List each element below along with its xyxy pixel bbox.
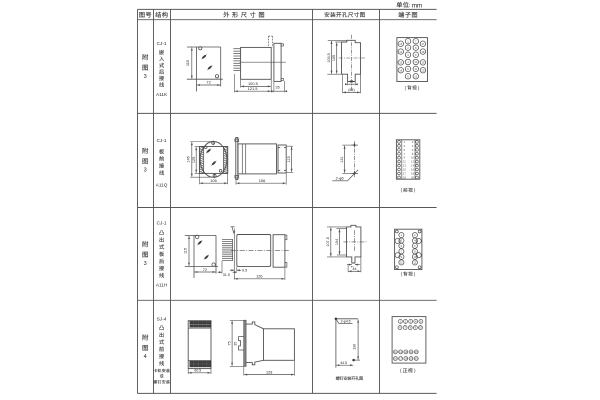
svg-text:19: 19 (410, 357, 413, 361)
svg-text:156: 156 (259, 178, 266, 183)
svg-text:131: 131 (340, 156, 344, 162)
svg-text:18: 18 (404, 357, 407, 361)
svg-text:11: 11 (414, 67, 417, 71)
svg-text:A11Q: A11Q (156, 182, 168, 187)
svg-text:31.5: 31.5 (223, 273, 230, 277)
svg-text:15: 15 (415, 350, 418, 354)
svg-text:17: 17 (399, 357, 402, 361)
svg-text:A11H: A11H (156, 282, 167, 287)
svg-text:14: 14 (410, 350, 413, 354)
svg-text:11: 11 (394, 350, 397, 354)
svg-text:20: 20 (421, 68, 424, 72)
svg-text:17: 17 (421, 42, 424, 46)
svg-text:35: 35 (276, 86, 280, 90)
svg-text:2-φ6: 2-φ6 (336, 177, 344, 181)
svg-text:104: 104 (335, 239, 339, 245)
svg-text:13: 13 (404, 350, 407, 354)
svg-text:115: 115 (287, 156, 291, 162)
svg-text:75: 75 (228, 341, 232, 345)
svg-text:125: 125 (192, 157, 196, 163)
svg-text:44: 44 (353, 267, 357, 271)
svg-text:20: 20 (415, 357, 418, 361)
svg-text:2-φ4.5: 2-φ4.5 (341, 319, 351, 323)
svg-text:9.5: 9.5 (242, 268, 247, 272)
svg-text:115: 115 (185, 60, 190, 66)
svg-text:16: 16 (399, 68, 402, 72)
svg-text:18: 18 (421, 50, 424, 54)
svg-text:mm: mm (412, 2, 422, 9)
svg-text:115: 115 (183, 248, 187, 254)
svg-text:121.5: 121.5 (248, 86, 258, 91)
svg-text:105: 105 (210, 178, 217, 183)
svg-text:72: 72 (203, 268, 207, 272)
svg-text:4: 4 (144, 354, 147, 360)
svg-text:A11K: A11K (156, 92, 168, 97)
svg-text:CJ-1: CJ-1 (157, 221, 167, 226)
svg-text:60.5: 60.5 (194, 369, 201, 373)
svg-text:SJ-4: SJ-4 (157, 317, 167, 322)
svg-text:72: 72 (206, 80, 210, 85)
svg-text:3: 3 (144, 167, 147, 173)
svg-text:3: 3 (144, 74, 147, 80)
svg-text:15: 15 (399, 61, 402, 65)
svg-text:19: 19 (421, 61, 424, 65)
svg-text:3: 3 (144, 261, 147, 267)
svg-text:13: 13 (399, 42, 402, 46)
svg-text:107.5: 107.5 (326, 237, 330, 247)
svg-text:10: 10 (419, 326, 422, 330)
svg-text:130: 130 (353, 344, 357, 350)
svg-text:128: 128 (266, 371, 272, 375)
svg-text:44.5: 44.5 (340, 361, 347, 365)
svg-text:CJ-1: CJ-1 (157, 41, 167, 46)
svg-text:12: 12 (414, 75, 417, 79)
svg-text:12: 12 (399, 350, 402, 354)
svg-text:105: 105 (332, 55, 336, 61)
svg-text:16: 16 (394, 357, 397, 361)
svg-text:CJ-1: CJ-1 (157, 138, 167, 143)
svg-text:16: 16 (349, 79, 353, 83)
svg-text:14: 14 (399, 50, 402, 54)
svg-text:35: 35 (234, 342, 238, 346)
svg-text:126: 126 (256, 275, 262, 279)
svg-text:103.5: 103.5 (327, 53, 331, 63)
svg-text:(84): (84) (348, 88, 354, 92)
svg-text:145: 145 (186, 156, 190, 162)
svg-text:10: 10 (414, 60, 417, 64)
